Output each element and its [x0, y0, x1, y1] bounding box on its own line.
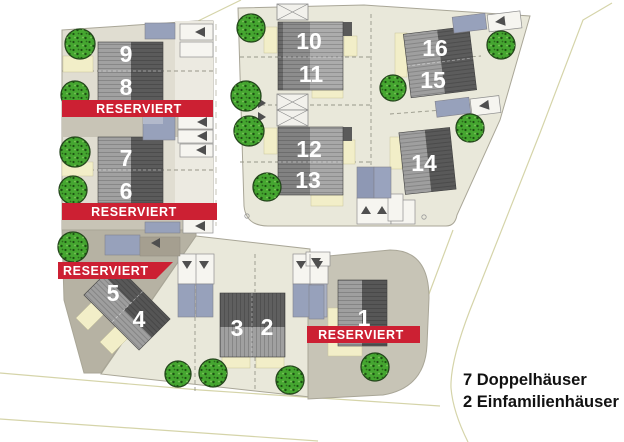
road-edge-topleft — [196, 0, 241, 22]
reserved-banner: RESERVIERT — [62, 100, 213, 117]
plot-number-6: 6 — [120, 178, 133, 204]
roof-dark-corner — [343, 22, 352, 36]
plot-number-4: 4 — [133, 306, 146, 332]
tree-icon — [199, 359, 227, 387]
plot-number-14: 14 — [411, 150, 437, 176]
site-plan: RESERVIERT RESERVIERT RESERVIERT RESERVI… — [0, 0, 624, 442]
reserved-banner-label: RESERVIERT — [91, 205, 177, 219]
tree-icon — [59, 176, 87, 204]
plot-number-3: 3 — [231, 315, 244, 341]
tree-icon — [456, 114, 484, 142]
tree-icon — [60, 137, 90, 167]
garage — [145, 23, 175, 39]
plot-number-7: 7 — [120, 145, 133, 171]
plot-number-5: 5 — [107, 280, 120, 306]
driveway-box — [178, 130, 213, 143]
tree-icon — [165, 361, 191, 387]
plot-number-8: 8 — [120, 74, 133, 100]
tree-icon — [276, 366, 304, 394]
legend-line-2: 2 Einfamilienhäuser — [463, 393, 619, 411]
tree-icon — [65, 29, 95, 59]
plot-number-15: 15 — [420, 67, 446, 93]
garage — [374, 167, 391, 198]
driveway-box — [180, 42, 213, 57]
tree-icon — [380, 75, 406, 101]
tree-icon — [234, 116, 264, 146]
plot-number-9: 9 — [120, 41, 133, 67]
garage — [293, 284, 310, 317]
garage — [309, 285, 324, 319]
reserved-banner-label: RESERVIERT — [63, 264, 149, 278]
reserved-banner-label: RESERVIERT — [96, 102, 182, 116]
reserved-banner: RESERVIERT — [58, 262, 173, 279]
road-edge-bottom-2 — [0, 419, 318, 441]
garage — [196, 284, 213, 317]
plot-number-1: 1 — [358, 305, 371, 331]
garage — [145, 222, 180, 233]
carport — [277, 110, 308, 126]
driveway-box — [178, 116, 213, 129]
legend: 7 Doppelhäuser 2 Einfamilienhäuser — [463, 371, 619, 411]
driveway-box — [180, 144, 213, 157]
tree-icon — [487, 31, 515, 59]
plot-number-2: 2 — [261, 314, 274, 340]
plot-number-13: 13 — [295, 167, 321, 193]
garage — [178, 284, 195, 317]
plot-number-11: 11 — [299, 61, 324, 87]
roof-dark-corner — [343, 127, 352, 141]
garage — [357, 167, 374, 198]
plot-number-16: 16 — [422, 35, 448, 61]
reserved-banner: RESERVIERT — [62, 203, 217, 220]
carport — [277, 4, 308, 20]
tree-icon — [361, 353, 389, 381]
garage — [105, 235, 140, 255]
site-plan-canvas: RESERVIERT RESERVIERT RESERVIERT RESERVI… — [0, 0, 624, 442]
legend-line-1: 7 Doppelhäuser — [463, 371, 587, 389]
driveway-box — [357, 198, 391, 224]
carport — [277, 94, 308, 110]
plot-number-12: 12 — [296, 136, 322, 162]
plot-number-10: 10 — [296, 28, 322, 54]
tree-icon — [58, 232, 88, 262]
tree-icon — [253, 173, 281, 201]
tree-icon — [237, 14, 265, 42]
tree-icon — [231, 81, 261, 111]
